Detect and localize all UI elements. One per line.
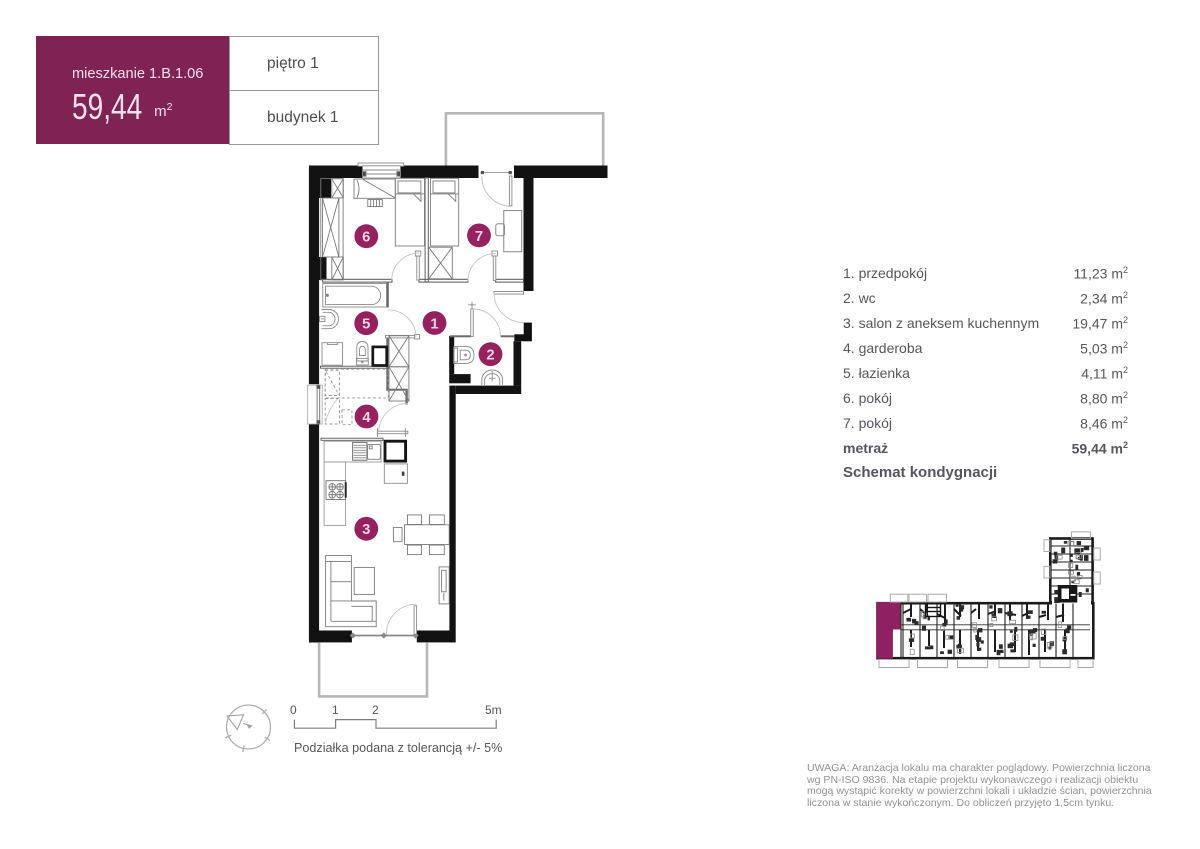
svg-text:7: 7 (475, 229, 483, 245)
svg-text:6: 6 (362, 230, 370, 246)
svg-text:3: 3 (362, 522, 370, 538)
svg-text:5: 5 (362, 317, 370, 333)
svg-text:1: 1 (430, 316, 438, 332)
svg-text:2: 2 (486, 348, 494, 364)
svg-text:4: 4 (362, 410, 371, 426)
